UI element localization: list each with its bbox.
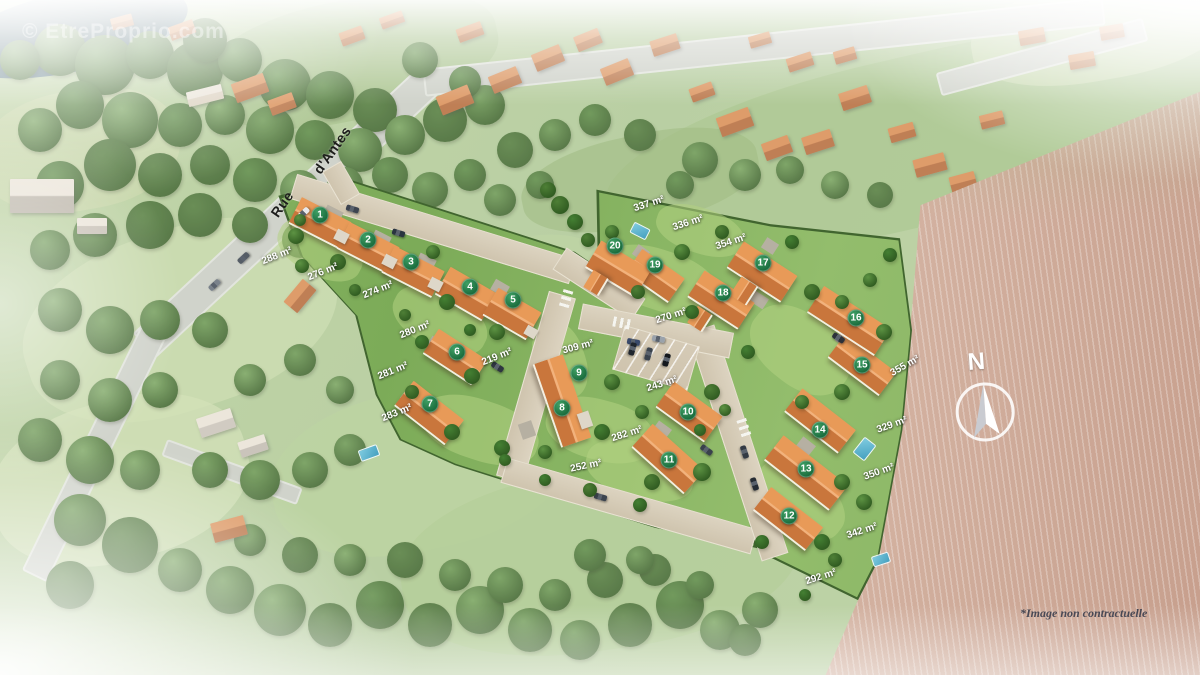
- lot-area-label-11: 282 m²: [610, 424, 644, 444]
- lot-markers: 1288 m²2276 m²3274 m²4280 m²5219 m²6281 …: [0, 0, 1200, 675]
- lot-marker-16: 16: [848, 310, 865, 327]
- lot-marker-14: 14: [812, 422, 829, 439]
- lot-marker-7: 7: [422, 396, 439, 413]
- lot-marker-6: 6: [449, 344, 466, 361]
- lot-marker-11: 11: [661, 452, 678, 469]
- disclaimer-text: *Image non contractuelle: [1020, 606, 1147, 621]
- lot-marker-12: 12: [781, 508, 798, 525]
- lot-area-label-13: 342 m²: [845, 521, 879, 541]
- lot-area-label-14: 350 m²: [862, 461, 896, 482]
- lot-area-label-9: 309 m²: [561, 338, 594, 357]
- lot-area-label-10: 243 m²: [645, 374, 679, 394]
- lot-marker-10: 10: [680, 404, 697, 421]
- lot-marker-18: 18: [715, 285, 732, 302]
- lot-marker-1: 1: [312, 207, 329, 224]
- site-plan-scene: 1288 m²2276 m²3274 m²4280 m²5219 m²6281 …: [0, 0, 1200, 675]
- lot-marker-13: 13: [798, 461, 815, 478]
- lot-area-label-19: 336 m²: [671, 213, 705, 233]
- lot-area-label-5: 219 m²: [480, 346, 514, 368]
- lot-marker-9: 9: [571, 365, 588, 382]
- lot-marker-15: 15: [854, 357, 871, 374]
- lot-marker-17: 17: [755, 255, 772, 272]
- lot-area-label-17: 354 m²: [714, 232, 748, 252]
- lot-area-label-18: 270 m²: [654, 306, 688, 326]
- lot-area-label-7: 283 m²: [380, 402, 414, 424]
- lot-area-label-20: 337 m²: [632, 194, 666, 214]
- watermark: © EtreProprio.com: [22, 20, 225, 44]
- lot-area-label-4: 280 m²: [398, 319, 432, 341]
- north-arrow: N: [944, 340, 1023, 451]
- lot-marker-4: 4: [462, 279, 479, 296]
- lot-area-label-12: 292 m²: [804, 567, 838, 587]
- lot-area-label-6: 281 m²: [376, 360, 410, 382]
- lot-area-label-2: 276 m²: [306, 261, 340, 283]
- lot-marker-5: 5: [505, 292, 522, 309]
- lot-area-label-8: 252 m²: [569, 457, 602, 474]
- lot-marker-2: 2: [360, 232, 377, 249]
- lot-marker-3: 3: [403, 254, 420, 271]
- lot-marker-19: 19: [647, 257, 664, 274]
- lot-marker-8: 8: [554, 400, 571, 417]
- lot-area-label-15: 329 m²: [875, 414, 909, 435]
- lot-area-label-1: 288 m²: [260, 245, 294, 267]
- lot-area-label-16: 355 m²: [889, 353, 922, 378]
- lot-marker-20: 20: [607, 238, 624, 255]
- lot-area-label-3: 274 m²: [361, 279, 395, 301]
- north-label: N: [967, 348, 986, 377]
